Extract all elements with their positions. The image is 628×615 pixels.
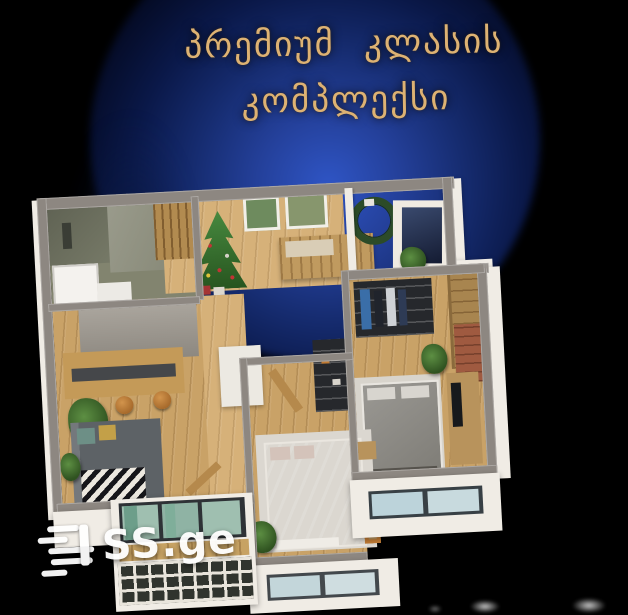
page-title-line1: პრემიუმ კლასის	[168, 21, 521, 67]
floor-plan	[45, 185, 500, 508]
hanging-clothes-white	[386, 288, 397, 326]
bottom-edge-glow-2	[470, 600, 500, 613]
tv-screen	[451, 382, 463, 426]
bedroom1-window-pane-2	[325, 572, 376, 595]
hanging-clothes-dark	[374, 290, 384, 326]
bed-gray-pillow-1	[367, 387, 396, 400]
bar-counter-top	[71, 363, 176, 381]
hanging-clothes-blue	[360, 289, 372, 329]
bedroom2-window-pane-2	[427, 489, 479, 514]
speed-line-1	[47, 525, 79, 533]
bottom-edge-glow-3	[572, 598, 606, 613]
speed-line-2	[38, 536, 68, 544]
page-title-line2: კომპლექსი	[212, 78, 481, 123]
speed-lines-icon	[29, 522, 98, 577]
tv-console	[446, 372, 483, 466]
outer-face-bedroom2	[350, 473, 503, 539]
bedroom2-window-pane-1	[371, 492, 423, 517]
bed-pink-pillow-1	[270, 447, 291, 461]
gift-box-white	[213, 287, 224, 296]
shelf-deco-white	[332, 379, 340, 385]
promo-image: პრემიუმ კლასის კომპლექსი	[0, 0, 628, 615]
sofa-pillow-teal	[77, 428, 96, 445]
bed-gray	[361, 380, 444, 482]
sofa-pillow-mustard	[98, 425, 116, 441]
speed-line-vertical	[79, 524, 90, 565]
bed-pink-foot-bench	[277, 537, 339, 549]
outer-face-bedroom1	[248, 558, 400, 614]
watermark-label: SS.ge	[101, 515, 238, 570]
wall-picture-1	[243, 196, 281, 232]
clothes-rack	[353, 278, 434, 338]
speed-line-5	[41, 570, 67, 577]
shower-fixture	[62, 223, 72, 249]
bedroom1-window-pane-1	[270, 575, 321, 598]
hanging-clothes-navy	[398, 289, 408, 325]
nightstand-1	[356, 441, 377, 460]
bed-pink-pillow-2	[294, 445, 315, 459]
bedroom2-window-strip	[368, 486, 483, 520]
bedroom1-window-strip	[267, 569, 380, 601]
bed-gray-pillow-2	[401, 385, 430, 398]
bench-cushion	[285, 239, 334, 257]
wreath-bow	[364, 199, 374, 207]
bottom-edge-glow-1	[428, 605, 442, 613]
